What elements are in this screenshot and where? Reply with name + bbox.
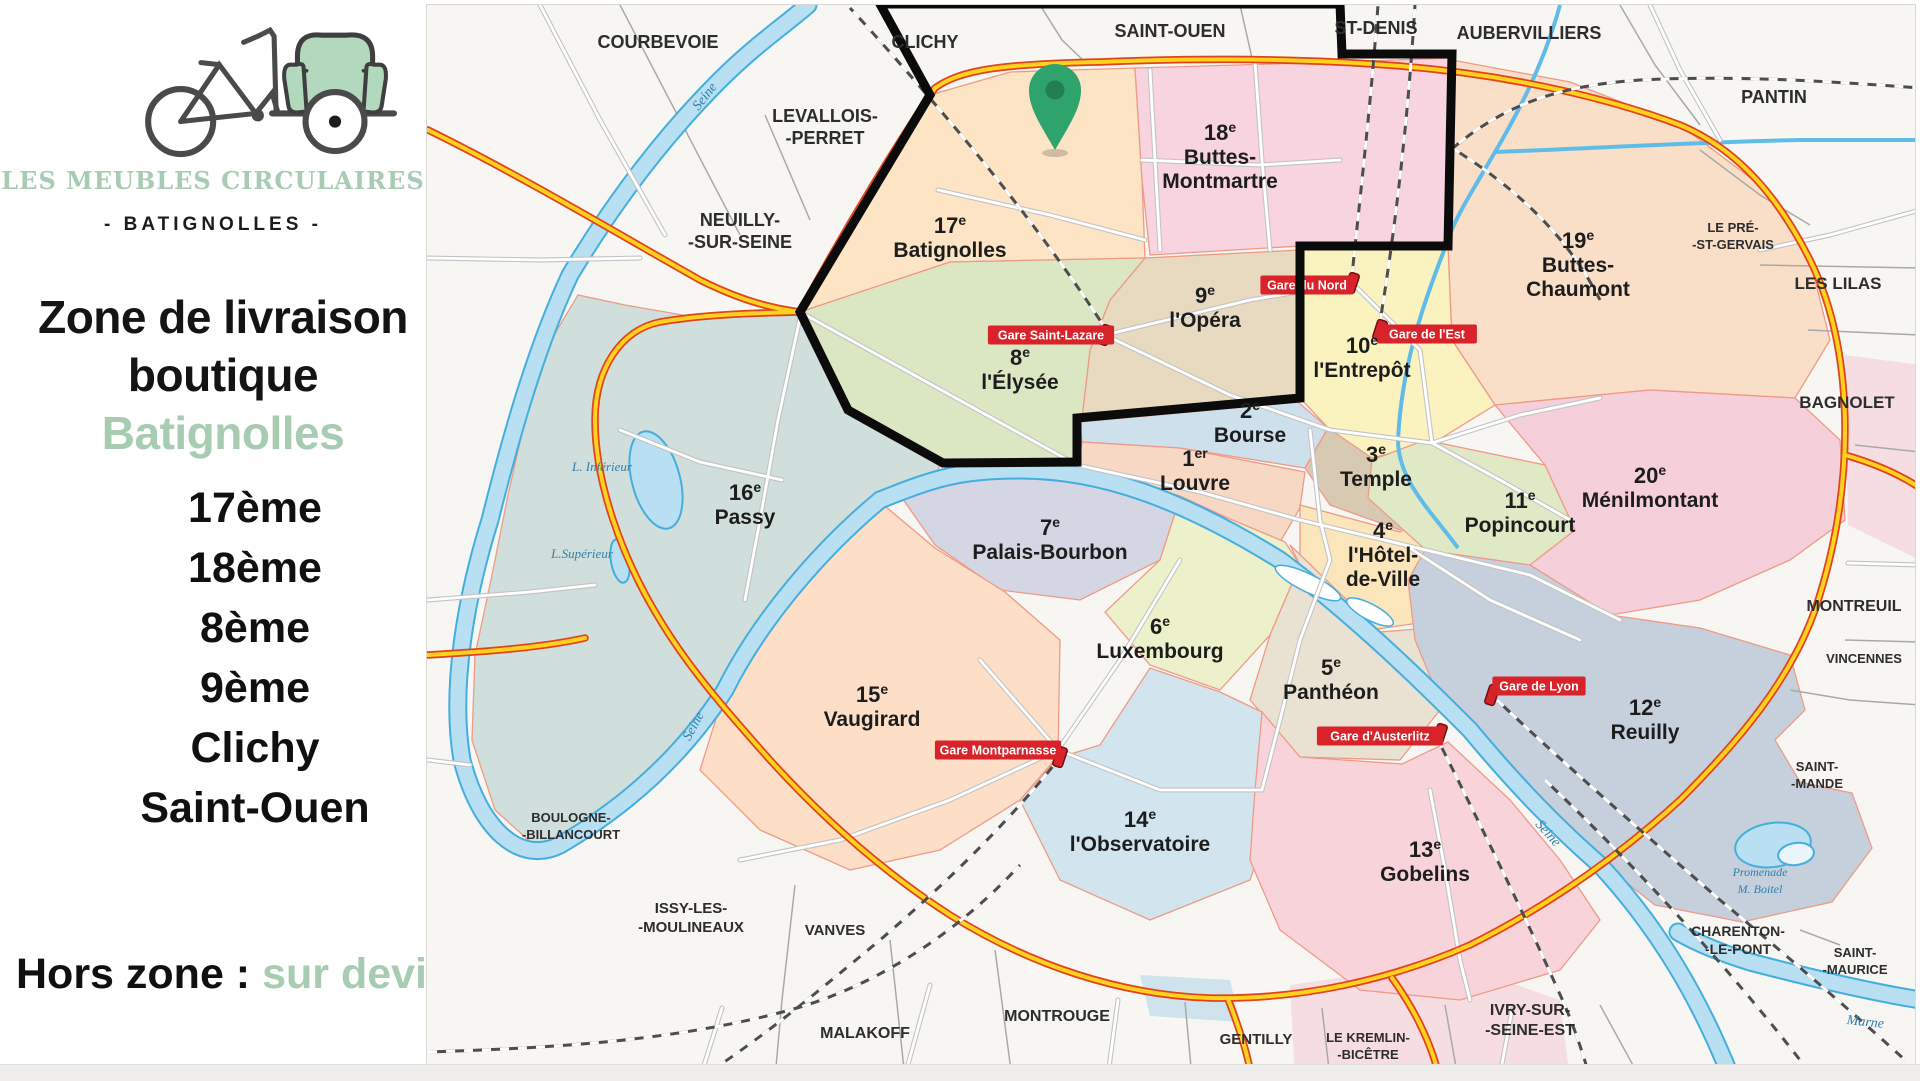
svg-text:CLICHY: CLICHY <box>892 32 959 52</box>
page-title: Zone de livraison boutique Batignolles <box>8 288 438 462</box>
suburb-label: PANTIN <box>1741 87 1807 107</box>
svg-text:-LE-PONT: -LE-PONT <box>1705 941 1772 957</box>
station-badge-label: Gare du Nord <box>1267 279 1347 293</box>
suburb-label: MONTREUIL <box>1806 598 1901 615</box>
title-batignolles: Batignolles <box>102 407 344 459</box>
svg-text:ST-DENIS: ST-DENIS <box>1334 18 1417 38</box>
brand-name: Les Meubles Circulaires <box>0 166 426 195</box>
zone-list-item: 18ème <box>40 538 470 598</box>
svg-text:Passy: Passy <box>715 506 776 529</box>
title-boutique: boutique <box>128 349 318 401</box>
svg-text:LES LILAS: LES LILAS <box>1795 274 1882 293</box>
suburb-label: VINCENNES <box>1826 651 1902 666</box>
svg-text:l'Entrepôt: l'Entrepôt <box>1313 359 1410 382</box>
bottom-strip <box>0 1064 1920 1081</box>
svg-text:BOULOGNE-: BOULOGNE- <box>531 810 610 825</box>
svg-text:VINCENNES: VINCENNES <box>1826 651 1902 666</box>
title-line-1: Zone de livraison <box>8 288 438 346</box>
svg-text:-BICÊTRE: -BICÊTRE <box>1337 1047 1399 1062</box>
pin-hole <box>1046 81 1065 100</box>
water-label: M. Boitel <box>1737 882 1783 896</box>
suburb-label: SAINT-OUEN <box>1114 21 1225 41</box>
svg-text:LE PRÉ-: LE PRÉ- <box>1707 220 1758 235</box>
svg-text:NEUILLY-: NEUILLY- <box>700 210 780 230</box>
suburb-label: AUBERVILLIERS <box>1457 23 1602 43</box>
water-label: L. Inférieur <box>571 459 633 474</box>
svg-text:Luxembourg: Luxembourg <box>1096 640 1223 663</box>
paris-map: Gare Saint-LazareGare du NordGare de l'E… <box>426 4 1916 1076</box>
station-badge-label: Gare Montparnasse <box>940 744 1057 758</box>
svg-text:-SEINE-EST: -SEINE-EST <box>1485 1022 1575 1039</box>
svg-text:MONTROUGE: MONTROUGE <box>1004 1008 1110 1025</box>
svg-text:IVRY-SUR-: IVRY-SUR- <box>1490 1002 1570 1019</box>
station-badge-label: Gare Saint-Lazare <box>998 329 1104 343</box>
svg-text:Buttes-: Buttes- <box>1542 254 1614 277</box>
station-gare-saint-lazare: Gare Saint-Lazare <box>988 324 1114 346</box>
zone-list-item: Saint-Ouen <box>40 778 470 838</box>
suburb-label: LEVALLOIS--PERRET <box>772 106 878 148</box>
svg-text:l'Opéra: l'Opéra <box>1169 309 1241 332</box>
svg-text:Vaugirard: Vaugirard <box>824 708 921 731</box>
svg-text:l'Observatoire: l'Observatoire <box>1070 833 1210 856</box>
svg-text:BAGNOLET: BAGNOLET <box>1799 393 1895 412</box>
svg-text:Panthéon: Panthéon <box>1283 681 1379 704</box>
info-panel: Les Meubles Circulaires - Batignolles - … <box>0 0 426 1080</box>
suburb-label: GENTILLY <box>1220 1031 1293 1048</box>
brand-subtitle: - Batignolles - <box>0 214 426 236</box>
water-label: Marne <box>1845 1013 1885 1032</box>
pin-shadow <box>1042 149 1068 157</box>
districts <box>472 58 1872 1000</box>
svg-text:SAINT-OUEN: SAINT-OUEN <box>1114 21 1225 41</box>
station-badge-label: Gare d'Austerlitz <box>1330 730 1430 744</box>
zone-list-item: 9ème <box>40 658 470 718</box>
water-label: Promenade <box>1732 865 1789 879</box>
svg-text:Temple: Temple <box>1340 468 1412 491</box>
svg-text:-PERRET: -PERRET <box>785 128 864 148</box>
svg-text:l'Hôtel-: l'Hôtel- <box>1348 544 1418 567</box>
svg-text:PANTIN: PANTIN <box>1741 87 1807 107</box>
brand-logo <box>138 22 398 162</box>
svg-text:Popincourt: Popincourt <box>1465 514 1576 537</box>
svg-text:LEVALLOIS-: LEVALLOIS- <box>772 106 878 126</box>
svg-text:CHARENTON-: CHARENTON- <box>1691 923 1785 939</box>
suburb-label: BAGNOLET <box>1799 393 1895 412</box>
suburb-label: MONTROUGE <box>1004 1008 1110 1025</box>
svg-text:Louvre: Louvre <box>1160 472 1230 495</box>
station-badge-label: Gare de l'Est <box>1389 328 1466 342</box>
cargo-bike-logo-icon <box>138 22 398 160</box>
svg-text:VANVES: VANVES <box>805 922 866 939</box>
svg-text:AUBERVILLIERS: AUBERVILLIERS <box>1457 23 1602 43</box>
svg-text:LE KREMLIN-: LE KREMLIN- <box>1326 1030 1410 1045</box>
title-line-2: boutique Batignolles <box>8 346 438 462</box>
zone-list-item: Clichy <box>40 718 470 778</box>
svg-text:-MOULINEAUX: -MOULINEAUX <box>638 919 744 936</box>
suburb-label: NEUILLY--SUR-SEINE <box>688 210 792 252</box>
svg-text:Ménilmontant: Ménilmontant <box>1582 489 1719 512</box>
out-of-zone-label: Hors zone : <box>16 950 262 998</box>
out-of-zone-value: sur devis <box>262 950 451 998</box>
water-label: L.Supérieur <box>550 546 614 561</box>
svg-text:GENTILLY: GENTILLY <box>1220 1031 1293 1048</box>
svg-text:Chaumont: Chaumont <box>1526 278 1630 301</box>
svg-text:-MAURICE: -MAURICE <box>1823 962 1888 977</box>
svg-text:-ST-GERVAIS: -ST-GERVAIS <box>1692 237 1774 252</box>
suburb-label: COURBEVOIE <box>597 32 718 52</box>
suburb-label: ISSY-LES--MOULINEAUX <box>638 900 744 936</box>
suburb-label: SAINT--MAURICE <box>1823 945 1888 977</box>
svg-text:COURBEVOIE: COURBEVOIE <box>597 32 718 52</box>
svg-text:-MANDE: -MANDE <box>1791 776 1843 791</box>
station-badge-label: Gare de Lyon <box>1499 680 1578 694</box>
zone-list-item: 8ème <box>40 598 470 658</box>
paris-map-svg: Gare Saint-LazareGare du NordGare de l'E… <box>427 5 1915 1075</box>
svg-text:ISSY-LES-: ISSY-LES- <box>655 900 728 917</box>
svg-text:Buttes-: Buttes- <box>1184 146 1256 169</box>
out-of-zone-note: Hors zone : sur devis <box>16 950 456 999</box>
svg-text:Batignolles: Batignolles <box>893 239 1006 262</box>
delivery-zone-list: 17ème18ème8ème9èmeClichySaint-Ouen <box>40 478 470 838</box>
svg-text:Palais-Bourbon: Palais-Bourbon <box>972 541 1127 564</box>
svg-text:Reuilly: Reuilly <box>1611 721 1680 744</box>
suburb-label: ST-DENIS <box>1334 18 1417 38</box>
bike-frame-icon <box>181 30 279 121</box>
svg-text:Gobelins: Gobelins <box>1380 863 1470 886</box>
suburb-label: SAINT--MANDE <box>1791 759 1843 791</box>
suburb-label: MALAKOFF <box>820 1025 910 1042</box>
suburb-label: LES LILAS <box>1795 274 1882 293</box>
svg-text:de-Ville: de-Ville <box>1346 568 1420 591</box>
svg-text:l'Élysée: l'Élysée <box>981 371 1058 394</box>
svg-text:Montmartre: Montmartre <box>1162 170 1278 193</box>
svg-text:-SUR-SEINE: -SUR-SEINE <box>688 232 792 252</box>
svg-text:MONTREUIL: MONTREUIL <box>1806 598 1901 615</box>
svg-text:-BILLANCOURT: -BILLANCOURT <box>522 827 620 842</box>
svg-text:SAINT-: SAINT- <box>1834 945 1877 960</box>
zone-list-item: 17ème <box>40 478 470 538</box>
svg-text:MALAKOFF: MALAKOFF <box>820 1025 910 1042</box>
suburb-label: CLICHY <box>892 32 959 52</box>
svg-text:SAINT-: SAINT- <box>1796 759 1839 774</box>
svg-text:Bourse: Bourse <box>1214 424 1286 447</box>
suburb-label: VANVES <box>805 922 866 939</box>
